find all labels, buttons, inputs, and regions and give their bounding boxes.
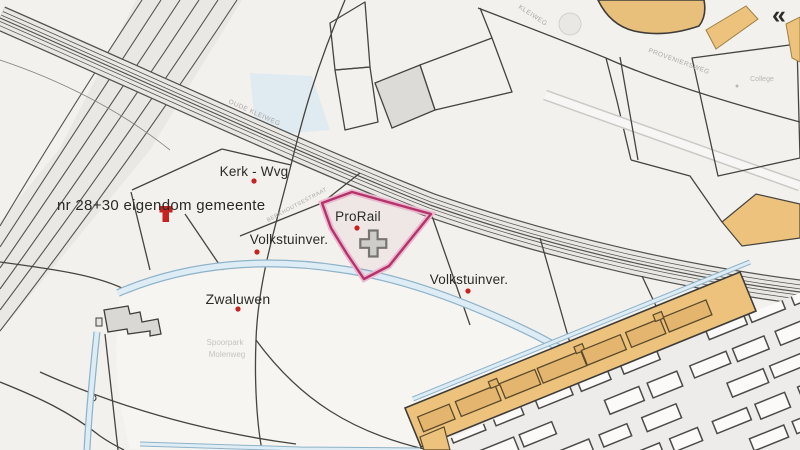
label-prorail: ProRail xyxy=(335,209,381,224)
label-volkstuin-left: Volkstuinver. xyxy=(250,232,328,247)
panel-collapse-button[interactable]: « xyxy=(766,2,792,30)
label-ownership: nr 28+30 eigendom gemeente xyxy=(57,197,265,214)
marker-dot-kerk xyxy=(251,178,256,183)
marker-dot-volkstuin-right xyxy=(465,288,470,293)
marker-dot-college xyxy=(736,85,739,88)
marker-dot-prorail xyxy=(354,225,359,230)
label-zwaluwen: Zwaluwen xyxy=(206,291,271,307)
marker-dot-zwaluwen xyxy=(235,306,240,311)
label-college: College xyxy=(750,76,774,83)
marker-dot-volkstuin-left xyxy=(254,249,259,254)
label-kerk: Kerk - Wvg xyxy=(220,164,289,179)
label-park-line1: Spoorpark xyxy=(207,338,245,347)
label-volkstuin-right: Volkstuinver. xyxy=(430,272,508,287)
map-canvas[interactable]: Kerk - Wvg nr 28+30 eigendom gemeente Pr… xyxy=(0,0,800,450)
label-park-line2: Molenweg xyxy=(209,350,245,359)
map-viewport: Kerk - Wvg nr 28+30 eigendom gemeente Pr… xyxy=(0,0,800,450)
